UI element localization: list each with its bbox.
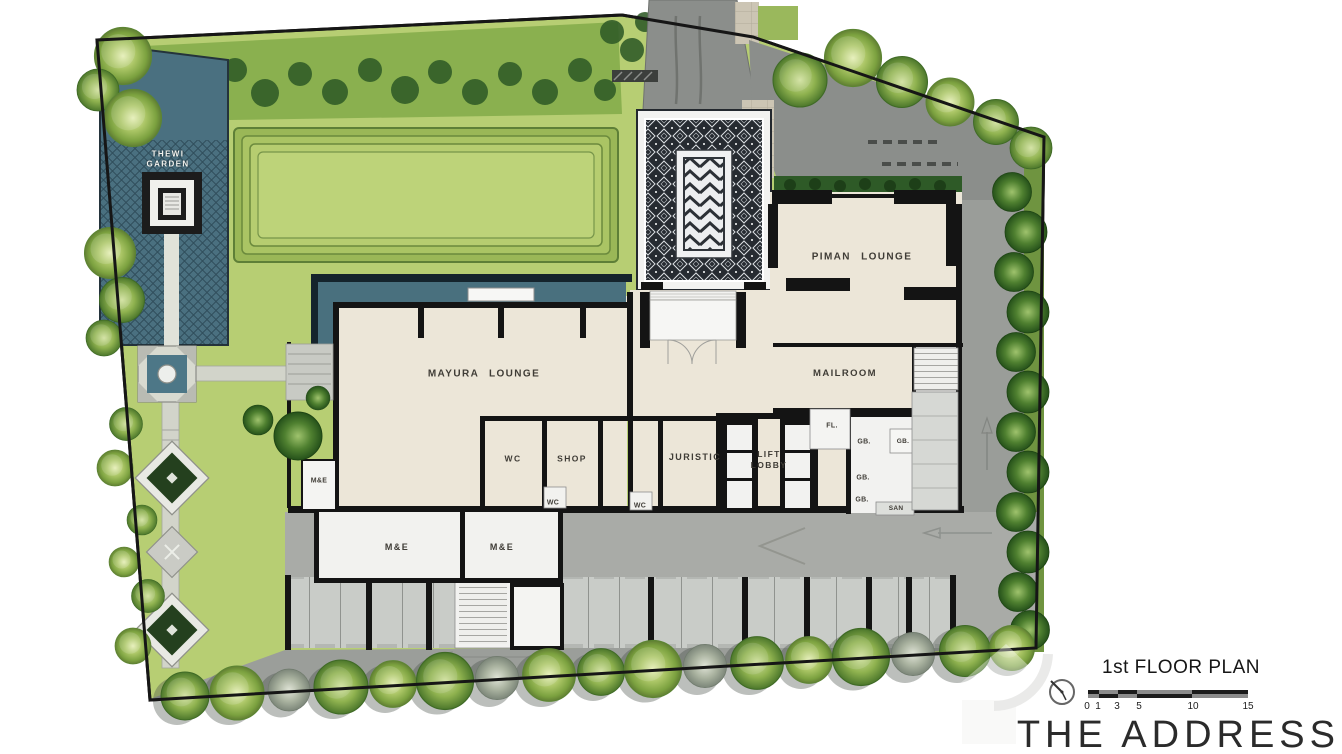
site-plan: THEWI GARDEN PIMAN LOUNGE MAYURA LOUNGE …	[0, 0, 1342, 754]
room-piman-lounge	[770, 192, 962, 347]
north-indicator-icon	[1050, 680, 1074, 704]
service-room	[512, 585, 562, 648]
parterre-garden	[234, 128, 618, 262]
floor-plan-canvas	[0, 0, 1342, 754]
scale-bar	[1088, 690, 1248, 698]
fountain	[138, 346, 196, 402]
pavilion	[142, 172, 202, 234]
entry-plaza	[637, 110, 771, 292]
